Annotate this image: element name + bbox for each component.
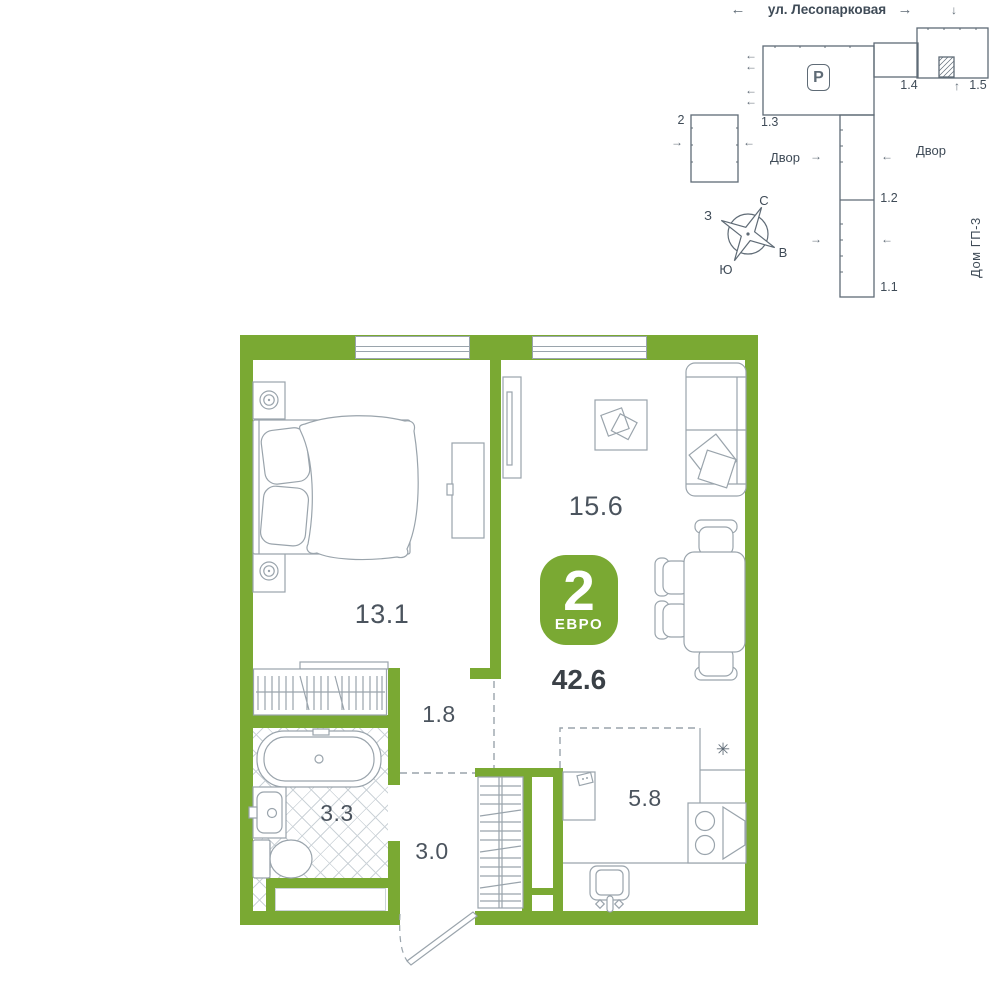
- closet-shelves: [478, 777, 523, 908]
- badge-type-label: ЕВРО: [555, 616, 603, 633]
- entrance-door: [400, 912, 477, 965]
- badge-rooms-count: 2: [563, 567, 595, 615]
- total-area-label: 42.6: [540, 664, 618, 696]
- stove: [688, 803, 746, 863]
- nightstand-bottom: [253, 550, 285, 592]
- bed: [253, 416, 418, 560]
- bathtub: [257, 729, 381, 787]
- compass-rose: [721, 207, 774, 260]
- dining-set: [655, 520, 745, 680]
- room-label-hall: 1.8: [409, 701, 469, 728]
- toilet: [253, 840, 312, 878]
- chair: [695, 648, 737, 680]
- site-building-column: [840, 115, 874, 297]
- site-building-2: [691, 115, 738, 182]
- kitchen-sink: [590, 866, 629, 912]
- room-label-bathroom: 3.3: [307, 800, 367, 827]
- room-label-living: 15.6: [556, 491, 636, 522]
- room-label-entry: 3.0: [402, 838, 462, 865]
- chair: [695, 520, 737, 555]
- room-label-bedroom: 13.1: [342, 599, 422, 630]
- plan-lineart: [0, 0, 1000, 1000]
- closet-hangers: [254, 662, 389, 715]
- vent-icon: ✳: [712, 740, 734, 760]
- tv-stand: [503, 377, 521, 478]
- dining-table: [684, 552, 745, 652]
- washing-machine: [563, 772, 595, 820]
- site-building-1-3: [763, 46, 874, 115]
- sofa: [686, 363, 746, 496]
- wardrobe-bedroom: [447, 443, 484, 538]
- site-hatch-square: [939, 57, 954, 77]
- sink-bathroom: [249, 787, 286, 838]
- apartment-type-badge: 2 ЕВРО: [540, 555, 618, 645]
- nightstand-top: [253, 382, 285, 419]
- site-building-1-4: [874, 43, 918, 77]
- floorplan-page: ул. Лесопарковая ← → ← ← ← ← ↓ ↑ → ← → ←…: [0, 0, 1000, 1000]
- room-label-kitchen: 5.8: [615, 785, 675, 812]
- coffee-table: [595, 400, 647, 450]
